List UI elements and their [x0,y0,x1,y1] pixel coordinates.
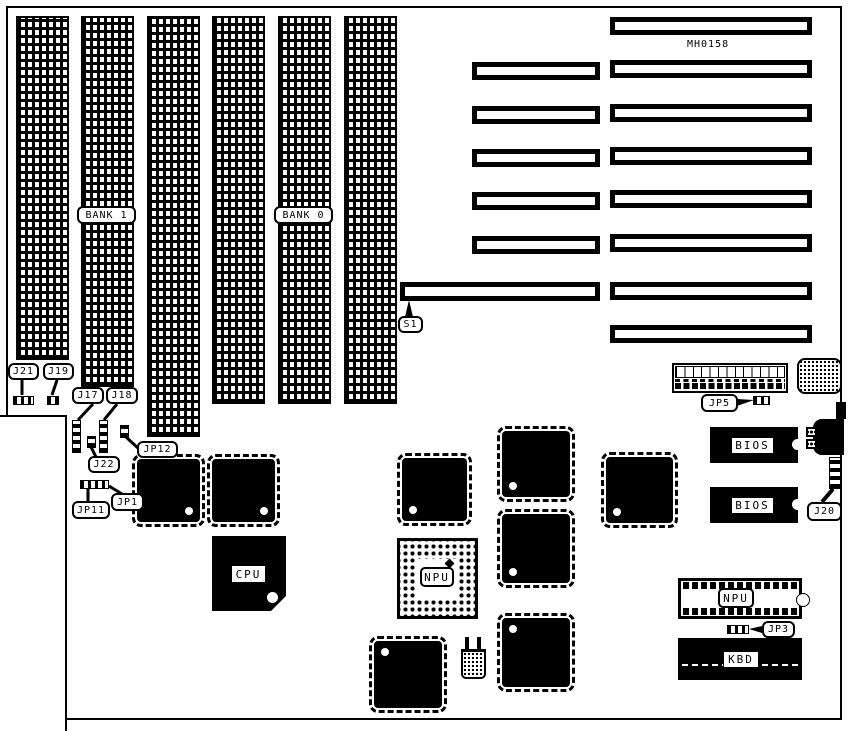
din-pin-bottom [806,439,817,449]
jumper-jp5 [753,396,770,405]
bios-bottom-notch [792,499,803,510]
npu-dip-notch [796,593,810,607]
bank1-label: BANK 1 [77,206,136,224]
qfp-chip-5 [502,514,570,583]
callout-jp3: JP3 [762,621,795,638]
jumper-jp11-jp1 [80,480,109,489]
expansion-slot-r7 [610,282,812,300]
pin-header-top-row [675,366,785,378]
cpu-label: CPU [231,565,266,583]
callout-j18: J18 [106,387,138,404]
jumper-j17 [72,420,81,453]
expansion-slot-r5 [610,190,812,208]
expansion-slot-l2 [472,106,600,124]
jumper-jp3 [727,625,749,634]
expansion-slot-r3 [610,104,812,122]
qfp-chip-6 [606,457,673,523]
callout-j20: J20 [807,502,842,521]
motherboard-diagram: BANK 1 BANK 0 MH0158 BIOS BIOS [0,0,851,731]
memory-chip-column-6 [344,16,397,404]
expansion-slot-r2 [610,60,812,78]
npu-socket-label: NPU [420,567,454,587]
qfp-chip-2 [212,459,275,522]
bios-bottom-label: BIOS [731,497,774,514]
callout-jp11: JP11 [72,501,110,519]
expansion-slot-r1 [610,17,812,35]
pin-header-mid-row [675,379,785,382]
callout-j21: J21 [8,363,39,380]
expansion-slot-r4 [610,147,812,165]
npu-dip-label: NPU [718,588,754,608]
jumper-jp12 [120,425,129,438]
memory-chip-column-4 [212,16,265,404]
jumper-j19 [47,396,59,405]
bios-top-notch [792,439,803,450]
callout-s1: S1 [398,316,423,333]
expansion-slot-r8 [610,325,812,343]
pin-header-pin-row [675,383,785,389]
pin-header-connector [672,363,788,393]
crystal-oscillator [461,649,486,679]
callout-jp5: JP5 [701,394,738,412]
memory-chip-column-3 [147,16,200,437]
memory-chip-column-2 [81,16,134,387]
callout-j22: J22 [88,456,120,473]
bank0-label: BANK 0 [274,206,333,224]
expansion-slot-l5 [472,236,600,254]
jumper-j22 [87,436,96,448]
callout-j17: J17 [72,387,104,404]
expansion-slot-l4 [472,192,600,210]
expansion-slot-long [400,282,600,301]
expansion-slot-l1 [472,62,600,80]
qfp-chip-4 [502,431,570,497]
callout-j19: J19 [43,363,74,380]
jumper-j18 [99,420,108,453]
qfp-chip-1 [137,459,200,522]
stippled-component [797,358,842,394]
board-edge-step [0,415,67,731]
keyboard-connector-step [836,402,846,419]
kbd-label: KBD [723,651,759,668]
qfp-chip-7 [374,641,442,708]
memory-chip-column-1 [16,16,69,360]
qfp-chip-3 [402,458,467,521]
callout-jp1: JP1 [111,493,144,511]
part-number: MH0158 [687,39,729,50]
jumper-j20 [829,457,841,489]
din-pin-top [806,427,817,437]
qfp-chip-8 [502,618,570,687]
jumper-j21 [13,396,34,405]
keyboard-din-connector [813,419,844,455]
callout-jp12: JP12 [137,441,178,458]
bios-top-label: BIOS [731,437,774,454]
expansion-slot-r6 [610,234,812,252]
expansion-slot-l3 [472,149,600,167]
